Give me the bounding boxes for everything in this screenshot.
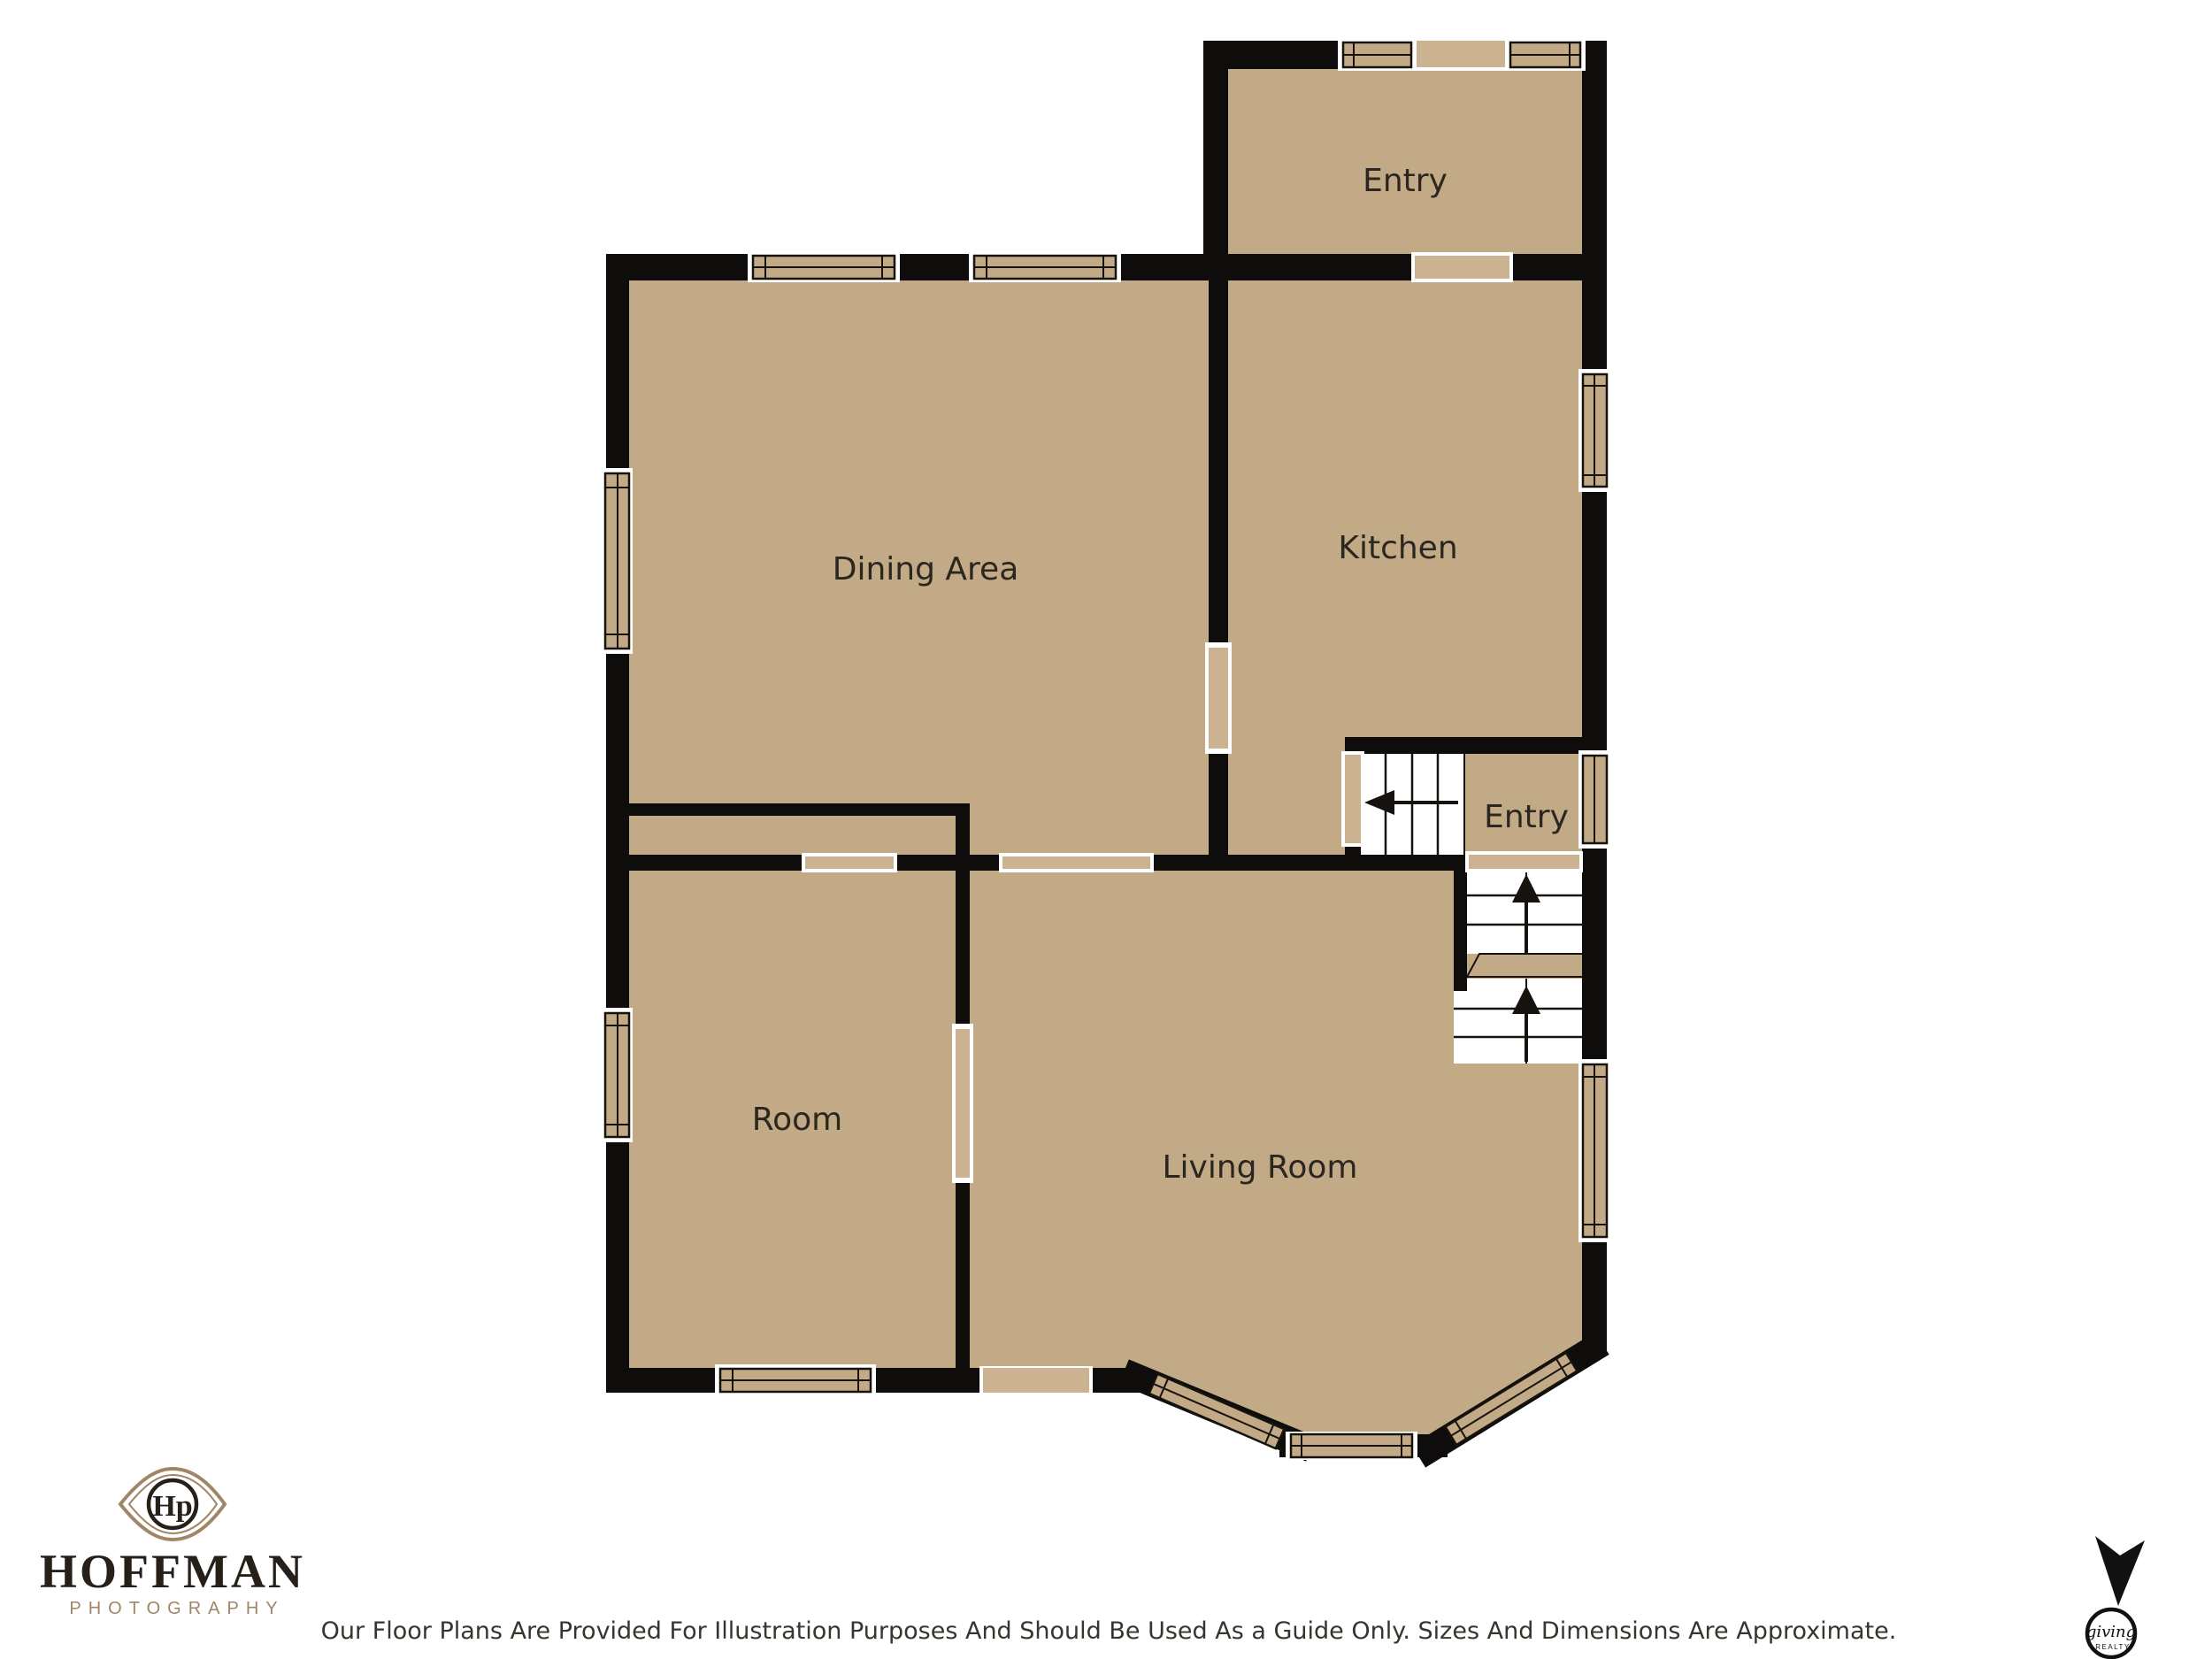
dining-floor bbox=[629, 280, 1209, 803]
dining-kitchen-wall-lower bbox=[1209, 749, 1228, 867]
living-east-window bbox=[1578, 1059, 1610, 1242]
north-arrow-icon bbox=[2095, 1536, 2145, 1606]
room-label-living-room: Living Room bbox=[1163, 1149, 1358, 1186]
entry-top-window-1 bbox=[1338, 39, 1417, 71]
living-room-exterior-door bbox=[979, 1366, 1093, 1394]
room-label-room: Room bbox=[752, 1102, 843, 1138]
room-label-entry-mid: Entry bbox=[1484, 799, 1569, 835]
room-living-wall-upper bbox=[956, 803, 970, 1024]
entry-top-window-2 bbox=[1505, 39, 1586, 71]
room-living-wall-lower bbox=[956, 1183, 970, 1368]
room-label-kitchen: Kitchen bbox=[1338, 530, 1457, 566]
stair-kitchen-doorway bbox=[1341, 751, 1364, 847]
room-south-window bbox=[715, 1364, 876, 1396]
closet-strip-floor bbox=[629, 816, 956, 855]
closet-room-door bbox=[802, 853, 897, 872]
logo-name: HOFFMAN bbox=[40, 1545, 305, 1598]
hoffman-eye-icon: Hp bbox=[120, 1469, 225, 1540]
floor-plan-canvas: Entry Dining Area Kitchen Entry Room Liv… bbox=[0, 0, 2212, 1659]
dining-kitchen-passthrough bbox=[1205, 642, 1232, 754]
dining-living-opening bbox=[999, 853, 1154, 872]
dining-kitchen-wall-upper bbox=[1209, 280, 1228, 648]
dining-west-window bbox=[601, 468, 633, 654]
room-divider-door bbox=[952, 1024, 973, 1183]
giving-realty-badge: giving REALTY bbox=[2086, 1609, 2136, 1657]
kitchen-south-wall bbox=[1345, 737, 1586, 754]
dining-floor-lower bbox=[970, 803, 1209, 855]
badge-script-text: giving bbox=[2086, 1623, 2136, 1641]
dining-north-window-1 bbox=[748, 252, 900, 282]
badge-caps-text: REALTY bbox=[2095, 1643, 2131, 1651]
dining-north-window-2 bbox=[969, 252, 1121, 282]
hoffman-logo: Hp HOFFMAN PHOTOGRAPHY bbox=[40, 1469, 305, 1618]
stair-landing bbox=[1467, 954, 1584, 977]
entry-top-interior-door bbox=[1411, 252, 1513, 282]
room-label-entry-top: Entry bbox=[1363, 163, 1448, 199]
stair-flight-2-side bbox=[1454, 991, 1467, 1064]
kitchen-floor-lower bbox=[1228, 737, 1345, 855]
bay-front-window bbox=[1286, 1432, 1417, 1460]
entry-top-west-wall bbox=[1203, 41, 1228, 254]
south-wall-b bbox=[871, 1368, 983, 1393]
closet-north-wall bbox=[629, 803, 970, 816]
kitchen-east-window bbox=[1578, 369, 1610, 492]
room-label-dining-area: Dining Area bbox=[833, 551, 1019, 588]
mid-wall-a bbox=[629, 855, 803, 871]
floor-plan-page: Entry Dining Area Kitchen Entry Room Liv… bbox=[0, 0, 2212, 1659]
entry-mid-door bbox=[1465, 851, 1583, 872]
logo-monogram: Hp bbox=[152, 1490, 192, 1523]
entry-top-exterior-door bbox=[1411, 39, 1510, 71]
room-west-window bbox=[601, 1008, 633, 1142]
disclaimer-text: Our Floor Plans Are Provided For Illustr… bbox=[321, 1617, 1897, 1645]
kitchen-floor bbox=[1228, 280, 1582, 737]
mid-wall-b bbox=[895, 855, 1001, 871]
entry-top-floor bbox=[1228, 69, 1582, 254]
entry-mid-east-window bbox=[1578, 750, 1610, 849]
south-wall-a bbox=[606, 1368, 720, 1393]
stairwell-west-wall bbox=[1454, 871, 1467, 991]
west-wall bbox=[606, 254, 629, 1393]
logo-subtitle: PHOTOGRAPHY bbox=[69, 1599, 284, 1618]
mid-wall-c bbox=[1152, 855, 1467, 871]
